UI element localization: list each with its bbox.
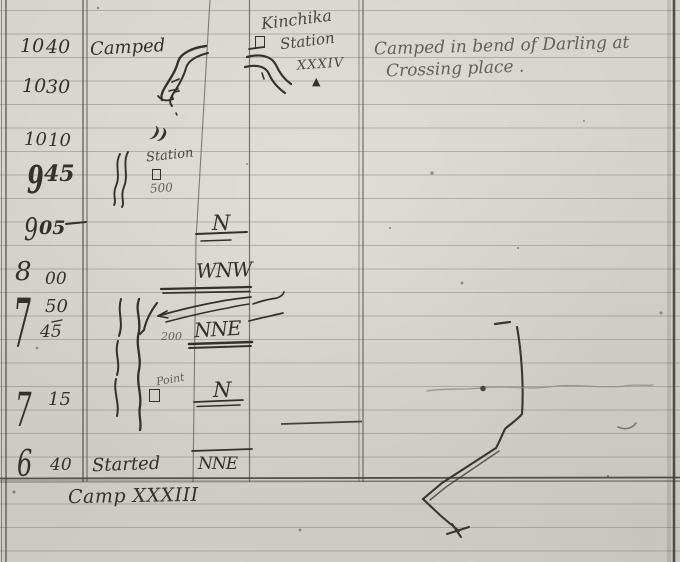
time-minute: 40 bbox=[50, 457, 72, 474]
bearing-nne-2: NNE bbox=[198, 456, 237, 473]
bearing-n-2: N bbox=[213, 380, 231, 401]
remark-started: Started bbox=[92, 455, 161, 475]
remark-camped: Camped bbox=[90, 37, 166, 59]
triangle-icon: ▲ bbox=[312, 76, 320, 87]
time-minute: 15 bbox=[48, 391, 71, 409]
station-square-icon bbox=[152, 169, 161, 180]
time-minute: 00 bbox=[45, 271, 67, 288]
time-minute: 50 bbox=[45, 298, 68, 316]
time-minute: 45 bbox=[44, 163, 75, 185]
bearing-wnw: WNW bbox=[196, 259, 252, 281]
track-distance: 200 bbox=[161, 331, 182, 342]
kinchika-square-icon bbox=[255, 36, 265, 48]
time-hour: 6 bbox=[17, 446, 32, 482]
time-minute: 10 bbox=[48, 132, 71, 150]
time-minute: 45 bbox=[40, 324, 62, 341]
time-hour: 7 bbox=[13, 292, 31, 359]
time-hour: 10 bbox=[22, 77, 46, 96]
ruled-lines bbox=[0, 10, 680, 562]
time-minute: 05 bbox=[39, 219, 65, 238]
bearing-n-1: N bbox=[212, 213, 230, 234]
time-hour: 9 bbox=[24, 216, 38, 247]
bearing-nne-1: NNE bbox=[194, 318, 242, 340]
camp-label: Camp XXXIII bbox=[68, 486, 199, 507]
point-square-icon bbox=[149, 389, 160, 402]
kinchika-numeral: XXXIV bbox=[297, 56, 345, 72]
note-line-2: Crossing place . bbox=[386, 59, 525, 81]
time-hour: 10 bbox=[20, 37, 44, 56]
time-minute: 40 bbox=[46, 38, 70, 57]
time-hour: 8 bbox=[15, 259, 32, 285]
time-hour: 7 bbox=[15, 388, 32, 435]
time-minute: 30 bbox=[46, 78, 70, 97]
time-hour: 10 bbox=[24, 131, 47, 149]
time-hour: 9 bbox=[27, 161, 44, 199]
notebook-page: 10 40 10 30 10 10 9 45 9 05 8 00 7 50 45… bbox=[0, 0, 680, 562]
station-distance: 500 bbox=[150, 181, 174, 195]
